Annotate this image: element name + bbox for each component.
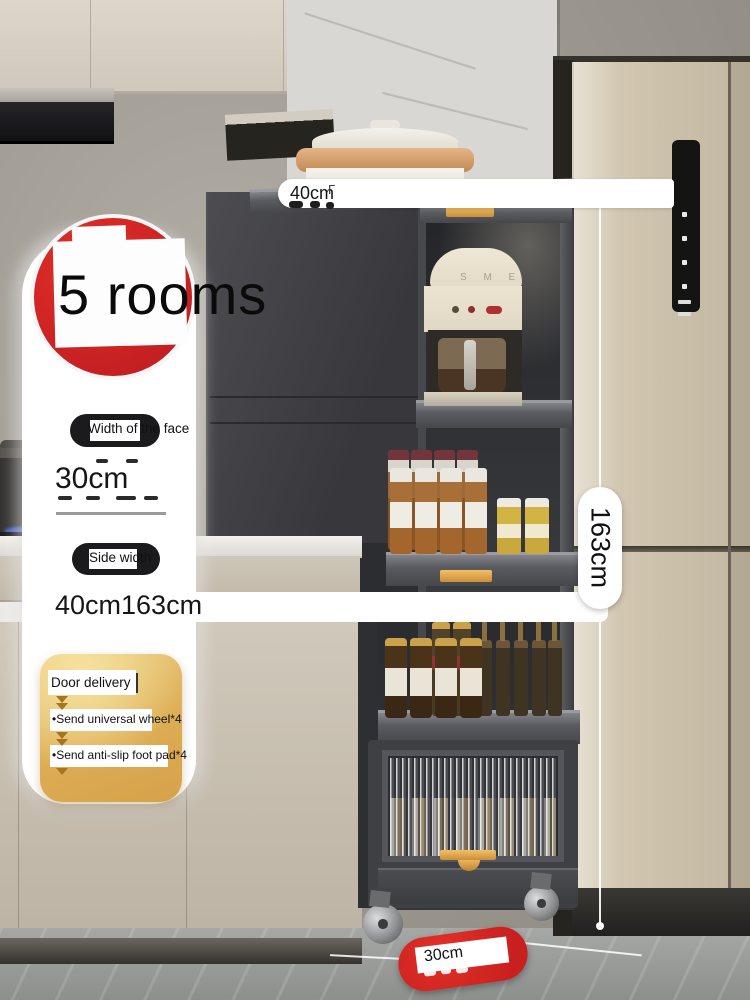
face-width-label: Width of the face <box>88 421 189 436</box>
covered-text-remnant <box>58 496 72 500</box>
text-cursor-mark <box>136 673 138 693</box>
promo-triangle-mark <box>56 696 68 703</box>
promo-line: •Send anti-slip foot pad*4 <box>52 748 187 762</box>
fridge-door-shade <box>731 62 750 890</box>
side-width-label: Side width <box>89 550 151 565</box>
coffee-maker-button <box>452 306 459 313</box>
cabinet-seam <box>283 0 284 94</box>
divider-line <box>56 512 166 515</box>
control-indicator-light <box>682 260 687 265</box>
sauce-bottle <box>410 638 432 718</box>
covered-text-remnant <box>144 496 158 500</box>
covered-text-remnant <box>116 496 136 500</box>
sauce-bottle <box>514 640 528 716</box>
spice-jar <box>440 468 462 554</box>
control-indicator-light <box>682 236 687 241</box>
covered-text-remnant <box>326 202 334 209</box>
caster-wheel <box>363 904 403 944</box>
height-measure-endpoint <box>596 922 604 930</box>
control-indicator-light <box>682 284 687 289</box>
control-indicator-light <box>682 212 687 217</box>
promo-triangle-mark <box>56 739 68 746</box>
spice-jar <box>415 468 437 554</box>
spice-jar <box>390 468 412 554</box>
sauce-bottle <box>460 638 482 718</box>
covered-text-remnant <box>310 201 320 208</box>
sauce-bottle <box>496 640 510 716</box>
caster-wheel <box>524 886 559 921</box>
rooms-badge-label: 5 rooms <box>58 262 267 327</box>
promo-line: Door delivery <box>51 675 131 690</box>
promo-line: •Send universal wheel*4 <box>52 712 182 726</box>
covered-text-remnant <box>86 496 100 500</box>
face-width-value: 30cm <box>55 462 128 496</box>
cabinet-handle <box>440 850 496 860</box>
control-indicator-light <box>678 312 691 316</box>
coffee-maker-base <box>424 392 522 406</box>
promo-triangle-mark <box>56 768 68 775</box>
pullout-tray-handle <box>440 570 492 582</box>
product-photo: S M E 40cm Γ 163cm 5 rooms <box>0 0 750 1000</box>
upper-cabinets <box>0 0 287 94</box>
control-indicator-light <box>678 300 691 304</box>
height-measure-label: 163cm <box>578 487 622 609</box>
sauce-bottle <box>548 640 562 716</box>
range-hood-trim <box>0 88 114 102</box>
covered-text-remnant <box>289 201 303 208</box>
width-measure-band <box>278 179 674 208</box>
promo-triangle-mark <box>56 732 68 739</box>
side-width-value: 40cm163cm <box>55 590 202 621</box>
range-hood <box>0 102 114 144</box>
kick-plate <box>0 938 362 964</box>
cabinet-seam <box>90 0 91 94</box>
spice-jar-yellow <box>497 498 521 554</box>
sauce-bottle <box>385 638 407 718</box>
spice-jar <box>465 468 487 554</box>
cabinet-seam <box>18 622 19 940</box>
spice-jar-yellow <box>525 498 549 554</box>
coffee-maker-button <box>468 306 475 313</box>
sauce-bottle <box>532 640 546 716</box>
rack-side-groove <box>210 396 422 398</box>
coffee-maker-switch <box>486 306 502 314</box>
rack-side-groove <box>210 422 422 424</box>
censor-band <box>196 592 608 622</box>
sauce-bottle <box>435 638 457 718</box>
promo-triangle-mark <box>56 703 68 710</box>
coffee-carafe-handle <box>464 340 476 390</box>
coffee-maker-brand: S M E <box>460 272 522 283</box>
width-measure-mark: Γ <box>328 182 335 197</box>
fluted-glass <box>390 758 556 856</box>
